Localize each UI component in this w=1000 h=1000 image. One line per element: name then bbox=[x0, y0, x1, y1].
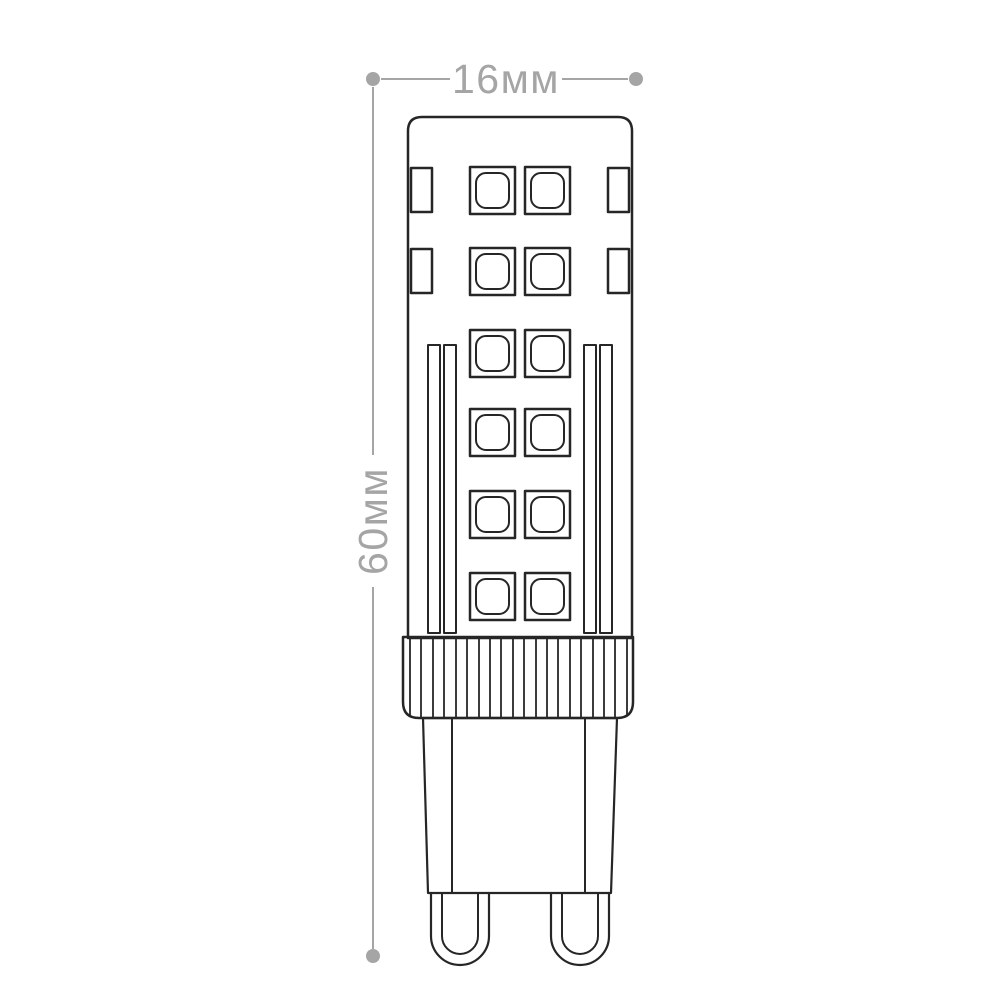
led-chip bbox=[470, 573, 515, 620]
collar-ribs bbox=[410, 637, 627, 718]
heat-strip bbox=[428, 345, 440, 633]
led-chip bbox=[470, 248, 515, 295]
led-chip bbox=[470, 167, 515, 214]
base-neck bbox=[423, 718, 617, 893]
side-slot bbox=[411, 249, 432, 293]
lamp-dimension-drawing: 60мм 16мм bbox=[0, 0, 1000, 1000]
dimension-dot-top-left bbox=[366, 72, 380, 86]
lamp-drawing bbox=[403, 117, 633, 965]
height-dimension: 60мм bbox=[350, 72, 396, 963]
led-chip bbox=[525, 573, 570, 620]
led-chip bbox=[525, 248, 570, 295]
side-vent-slots bbox=[411, 168, 629, 293]
led-chip bbox=[525, 167, 570, 214]
pins bbox=[431, 893, 609, 965]
side-slot bbox=[411, 168, 432, 212]
dimension-diagram: 60мм 16мм bbox=[0, 0, 1000, 1000]
height-dimension-label: 60мм bbox=[350, 467, 396, 575]
led-chip bbox=[470, 409, 515, 456]
collar-outline bbox=[403, 637, 633, 718]
side-slot bbox=[608, 249, 629, 293]
heat-strip bbox=[444, 345, 456, 633]
dimension-dot-bottom bbox=[366, 949, 380, 963]
width-dimension: 16мм bbox=[381, 56, 643, 102]
led-chip bbox=[470, 330, 515, 377]
width-dimension-label: 16мм bbox=[452, 56, 560, 102]
led-chip bbox=[525, 409, 570, 456]
side-slot bbox=[608, 168, 629, 212]
dimension-dot-top-right bbox=[629, 72, 643, 86]
heat-strips bbox=[428, 345, 612, 633]
heat-strip bbox=[600, 345, 612, 633]
led-chip bbox=[470, 491, 515, 538]
heat-strip bbox=[584, 345, 596, 633]
lamp-body-outline bbox=[408, 117, 632, 638]
led-chip bbox=[525, 330, 570, 377]
led-chip-grid bbox=[470, 167, 570, 620]
led-chip bbox=[525, 491, 570, 538]
pin-right-inner bbox=[562, 893, 598, 954]
pin-left-inner bbox=[442, 893, 478, 954]
